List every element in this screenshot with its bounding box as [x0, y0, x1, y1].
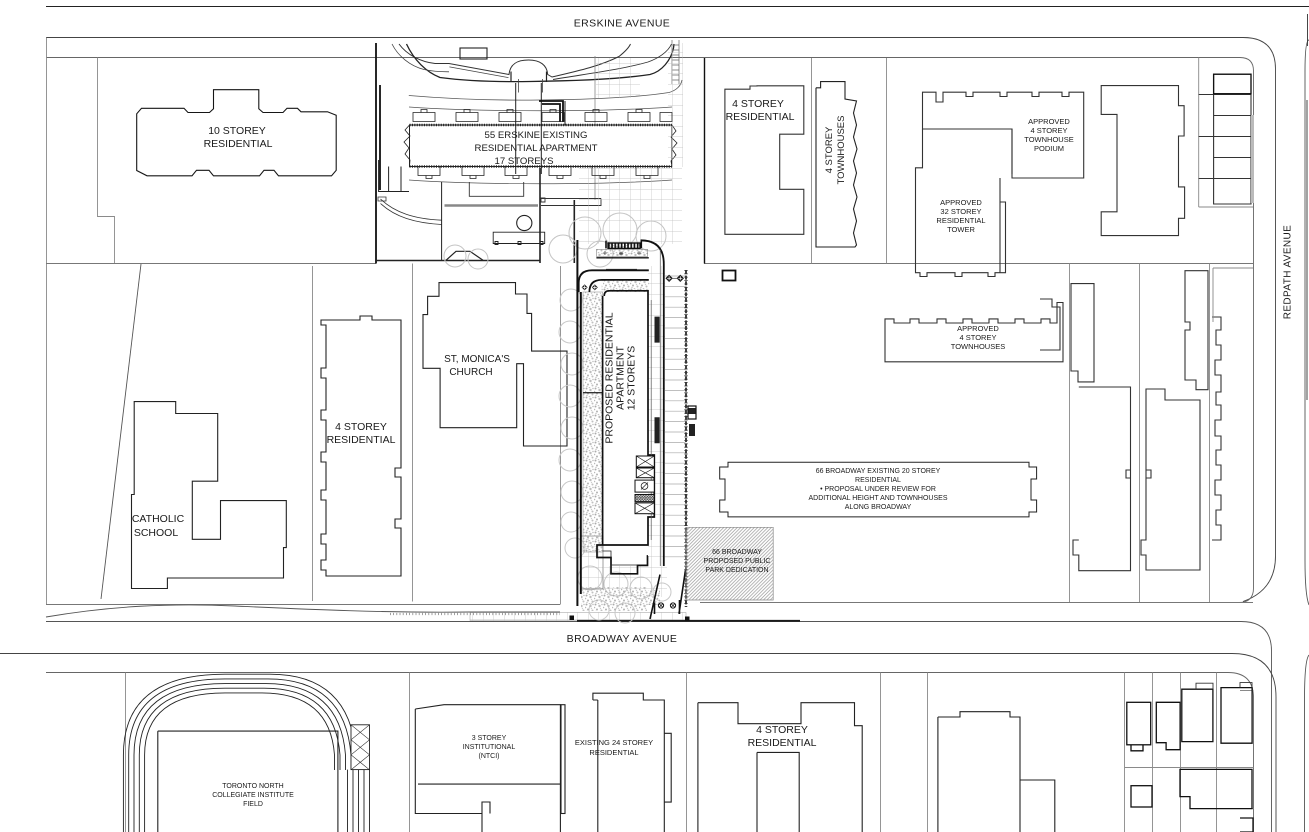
svg-text:RESIDENTIAL: RESIDENTIAL [589, 748, 638, 757]
svg-text:66 BROADWAY: 66 BROADWAY [712, 549, 762, 556]
svg-text:FIELD: FIELD [243, 801, 263, 808]
svg-text:TOWNHOUSES: TOWNHOUSES [836, 116, 847, 185]
svg-text:EXISTING 24 STOREY: EXISTING 24 STOREY [575, 738, 653, 747]
svg-text:TOWNHOUSES: TOWNHOUSES [951, 342, 1005, 351]
svg-text:ST, MONICA'S: ST, MONICA'S [444, 354, 510, 365]
svg-text:ERSKINE AVENUE: ERSKINE AVENUE [574, 18, 670, 30]
svg-text:12 STOREYS: 12 STOREYS [626, 346, 638, 411]
svg-text:TOWNHOUSE: TOWNHOUSE [1024, 135, 1073, 144]
svg-text:CATHOLIC: CATHOLIC [132, 513, 185, 525]
svg-text:APPROVED: APPROVED [1028, 117, 1070, 126]
svg-text:ADDITIONAL HEIGHT AND TOWNHOUS: ADDITIONAL HEIGHT AND TOWNHOUSES [809, 495, 948, 502]
svg-text:RESIDENTIAL: RESIDENTIAL [327, 434, 396, 446]
svg-text:• PROPOSAL UNDER REVIEW FOR: • PROPOSAL UNDER REVIEW FOR [820, 486, 936, 493]
svg-text:INSTITUTIONAL: INSTITUTIONAL [463, 744, 516, 751]
svg-text:PODIUM: PODIUM [1034, 144, 1064, 153]
svg-text:4 STOREY: 4 STOREY [732, 98, 784, 110]
svg-text:55 ERSKINE EXISTING: 55 ERSKINE EXISTING [485, 130, 588, 141]
svg-text:TOWER: TOWER [947, 225, 975, 234]
svg-text:4 STOREY: 4 STOREY [960, 333, 997, 342]
svg-text:PARK DEDICATION: PARK DEDICATION [705, 567, 768, 574]
svg-text:32 STOREY: 32 STOREY [940, 207, 981, 216]
svg-text:RESIDENTIAL: RESIDENTIAL [748, 737, 817, 749]
svg-text:3 STOREY: 3 STOREY [472, 735, 507, 742]
svg-text:4 STOREY: 4 STOREY [824, 126, 835, 173]
svg-text:4 STOREY: 4 STOREY [335, 421, 387, 433]
svg-text:RESIDENTIAL APARTMENT: RESIDENTIAL APARTMENT [475, 143, 598, 154]
svg-text:RESIDENTIAL: RESIDENTIAL [936, 216, 985, 225]
svg-text:PROPOSED PUBLIC: PROPOSED PUBLIC [704, 558, 771, 565]
svg-text:10 STOREY: 10 STOREY [208, 125, 266, 137]
svg-text:4 STOREY: 4 STOREY [1031, 126, 1068, 135]
svg-text:SCHOOL: SCHOOL [134, 527, 179, 539]
svg-text:RESIDENTIAL: RESIDENTIAL [726, 111, 795, 123]
svg-text:66 BROADWAY EXISTING 20 STOREY: 66 BROADWAY EXISTING 20 STOREY [816, 468, 941, 475]
svg-text:CHURCH: CHURCH [449, 367, 492, 378]
svg-text:4 STOREY: 4 STOREY [756, 724, 808, 736]
svg-text:17 STOREYS: 17 STOREYS [494, 156, 553, 167]
svg-text:TORONTO NORTH: TORONTO NORTH [222, 783, 283, 790]
svg-text:APPROVED: APPROVED [940, 198, 982, 207]
svg-text:REDPATH AVENUE: REDPATH AVENUE [1283, 225, 1294, 320]
svg-text:ALONG BROADWAY: ALONG BROADWAY [845, 504, 912, 511]
svg-text:RESIDENTIAL: RESIDENTIAL [204, 138, 273, 150]
svg-text:APPROVED: APPROVED [957, 324, 999, 333]
svg-text:(NTCI): (NTCI) [479, 753, 500, 760]
svg-text:COLLEGIATE INSTITUTE: COLLEGIATE INSTITUTE [212, 792, 294, 799]
svg-text:BROADWAY AVENUE: BROADWAY AVENUE [567, 633, 678, 645]
svg-text:RESIDENTIAL: RESIDENTIAL [855, 477, 901, 484]
